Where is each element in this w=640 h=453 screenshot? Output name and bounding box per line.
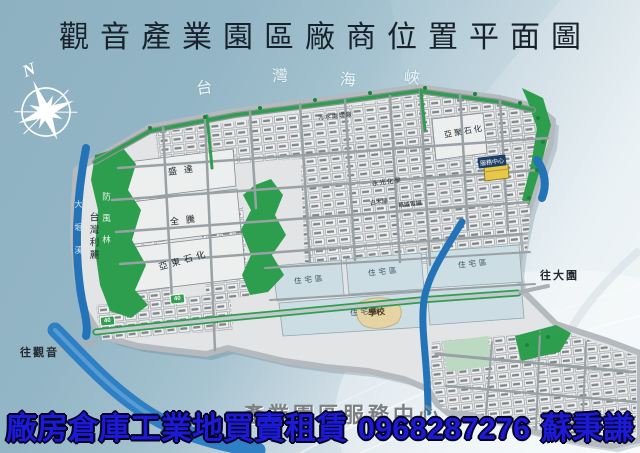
compass-north-label: N <box>19 58 39 81</box>
map-canvas: N <box>0 0 640 453</box>
industrial-park-map-poster: N 台 灣 海 峽 盛達 全騰 亞東石化 亞聚石化 永光化學 白木屋 華城電機 … <box>0 0 640 453</box>
ad-banner-contact: 蘇秉謙 <box>541 403 634 448</box>
page-title: 觀音產業園區廠商位置平面圖 <box>0 12 640 56</box>
ad-banner-phone: 0968287276 <box>358 411 530 447</box>
service-center-building <box>484 164 509 181</box>
ad-banner: 廠房倉庫工業地買賣租賃 0968287276 蘇秉謙 <box>6 403 634 448</box>
ad-banner-services: 廠房倉庫工業地買賣租賃 <box>6 403 347 448</box>
compass-rose-icon: N <box>0 50 85 151</box>
